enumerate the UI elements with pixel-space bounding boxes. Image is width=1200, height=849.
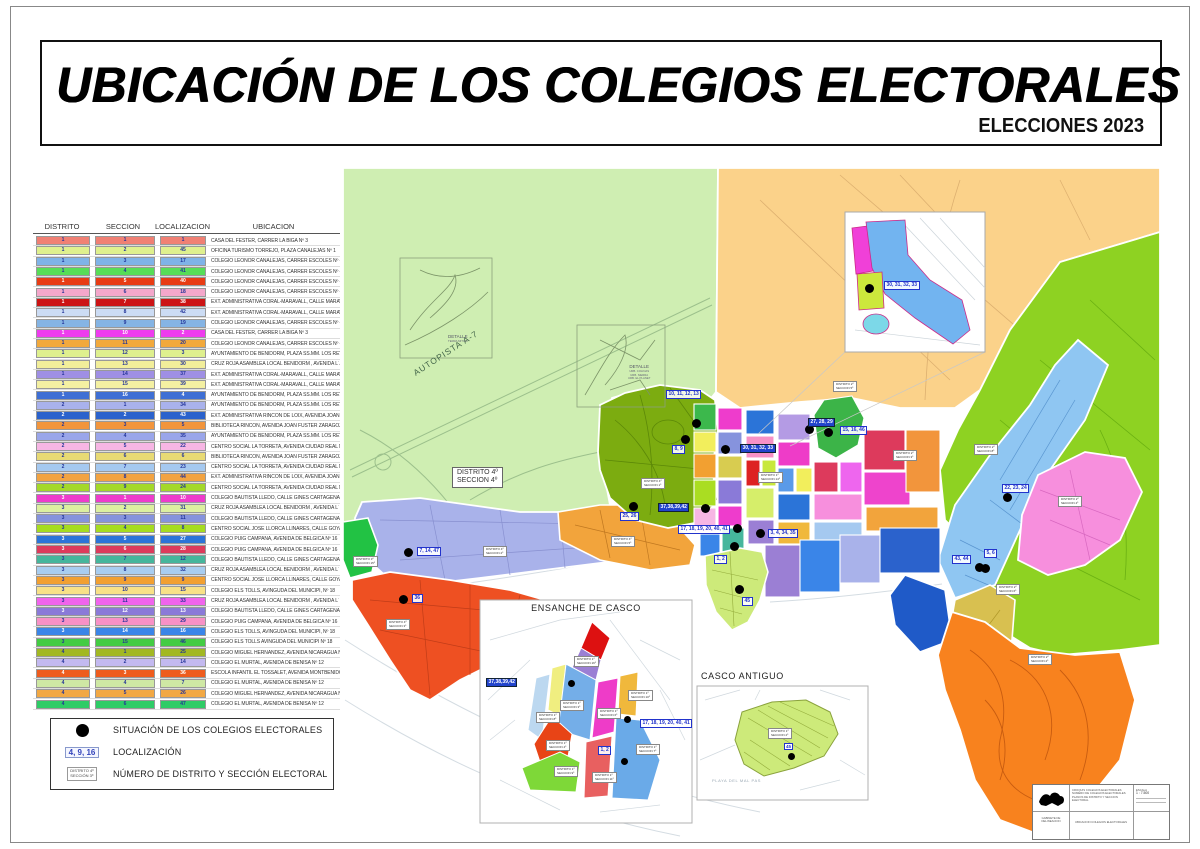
colegio-dot (733, 524, 742, 533)
district-section-box: DISTRITO 4ºSECCION 1º (641, 478, 665, 489)
benidorm-logo (1036, 788, 1066, 808)
localizacion-label: 3, 4, 34, 35 (768, 529, 798, 538)
colegio-dot (721, 445, 730, 454)
cartouche-titles: CROQUIS COLEGIOS ELECTORALES NUMERO DE C… (1072, 789, 1130, 803)
colegio-dot (865, 284, 874, 293)
district-section-box: DISTRITO 4ºSECCION 5º (611, 536, 635, 547)
localizacion-label: 15, 16, 46 (840, 426, 867, 435)
localizacion-label: 37,38,39,42 (658, 503, 689, 512)
district-section-box: DISTRITO 4ºSECCION 4º (452, 467, 503, 488)
district-section-box: DISTRITO 1ºSECCION 8º (536, 712, 560, 723)
colegio-dot (756, 529, 765, 538)
localizacion-label: 36 (412, 594, 423, 603)
cartouche-scale: ESCALA 1 : 7.500 (1136, 789, 1166, 803)
colegio-dot (692, 419, 701, 428)
localizacion-label: 17, 18, 19, 20, 40, 41 (640, 719, 692, 728)
localizacion-label: 7, 14, 47 (417, 547, 441, 556)
detail2-label: DETALLE URB. COLINAS URB. SIERRA URB. EL… (628, 364, 650, 381)
localizacion-label: 25, 26 (620, 512, 639, 521)
casco-title: CASCO ANTIGUO (701, 671, 784, 681)
colegio-dot (399, 595, 408, 604)
district-section-box: DISTRITO 2ºSECCION 4º (1058, 496, 1082, 507)
casco-district-box: DISTRITO 1ºSECCION 2º (768, 728, 792, 739)
main-map (0, 0, 1200, 849)
colegio-dot (624, 716, 631, 723)
localizacion-label: 30, 31, 32, 33 (884, 281, 920, 290)
district-section-box: DISTRITO 1ºSECCION 3º (560, 700, 584, 711)
colegio-dot (730, 542, 739, 551)
district-section-box: DISTRITO 1ºSECCION 10º (628, 690, 653, 701)
district-section-box: DISTRITO 1ºSECCION 11º (592, 772, 617, 783)
district-section-box: DISTRITO 1ºSECCION 6º (597, 708, 621, 719)
colegio-dot (629, 502, 638, 511)
localizacion-label: 43, 44 (952, 555, 971, 564)
localizacion-label: 30, 31, 32, 33 (740, 444, 776, 453)
colegio-dot (824, 428, 833, 437)
district-section-box: DISTRITO 1ºSECCION 16º (574, 656, 599, 667)
localizacion-label: 5, 6 (984, 549, 997, 558)
district-section-box: DISTRITO 2ºSECCION 5º (833, 381, 857, 392)
cartouche-plan-title: UBICACION COLEGIOS ELECTORALES (1072, 821, 1130, 824)
localizacion-label: 22, 23, 24 (1002, 484, 1029, 493)
colegio-dot (1003, 493, 1012, 502)
district-section-box: DISTRITO 1ºSECCION 9º (554, 766, 578, 777)
localizacion-label: 1, 2 (714, 555, 727, 564)
district-section-box: DISTRITO 4ºSECCION 2º (483, 546, 507, 557)
district-section-box: DISTRITO 2ºSECCION 8º (974, 444, 998, 455)
district-section-box: DISTRITO 1ºSECCION 7º (636, 744, 660, 755)
colegio-dot (681, 435, 690, 444)
casco-loc-chip: 45 (784, 743, 793, 750)
district-section-box: DISTRITO 4ºSECCION 3º (386, 619, 410, 630)
inset-ensanche (480, 600, 692, 823)
district-section-box: DISTRITO 1ºSECCION 4º (546, 740, 570, 751)
colegio-dot (735, 585, 744, 594)
cartouche: CROQUIS COLEGIOS ELECTORALES NUMERO DE C… (1032, 784, 1170, 840)
localizacion-label: 1, 2 (598, 746, 611, 755)
colegio-dot (788, 753, 795, 760)
playa-mal-pas-label: PLAYA DEL MAL PAS (712, 778, 761, 783)
district-section-box: DISTRITO 2ºSECCION 3º (893, 450, 917, 461)
colegio-dot (981, 564, 990, 573)
colegio-dot (701, 504, 710, 513)
district-section-box: DISTRITO 3ºSECCION 15º (353, 556, 378, 567)
colegio-dot (404, 548, 413, 557)
district-section-box: DISTRITO 1ºSECCION 14º (758, 472, 783, 483)
cartouche-office: GABINETE DE DELINEACION (1035, 817, 1067, 824)
localizacion-label: 8, 9 (672, 445, 685, 454)
localizacion-label: 10, 11, 12, 13 (666, 390, 701, 399)
colegio-dot (621, 758, 628, 765)
localizacion-label: 45 (742, 597, 753, 606)
colegio-dot (568, 680, 575, 687)
ensanche-title: ENSANCHE DE CASCO (480, 603, 692, 613)
detail1-label: DETALLE TERRA MITICA (448, 334, 468, 344)
district-section-box: DISTRITO 2ºSECCION 2º (1028, 654, 1052, 665)
localizacion-label: 17, 18, 19, 20, 40, 41 (678, 525, 730, 534)
localizacion-label: 27, 28, 29 (808, 418, 835, 427)
localizacion-label: 37,38,39,42 (486, 678, 517, 687)
district-section-box: DISTRITO 2ºSECCION 6º (996, 584, 1020, 595)
